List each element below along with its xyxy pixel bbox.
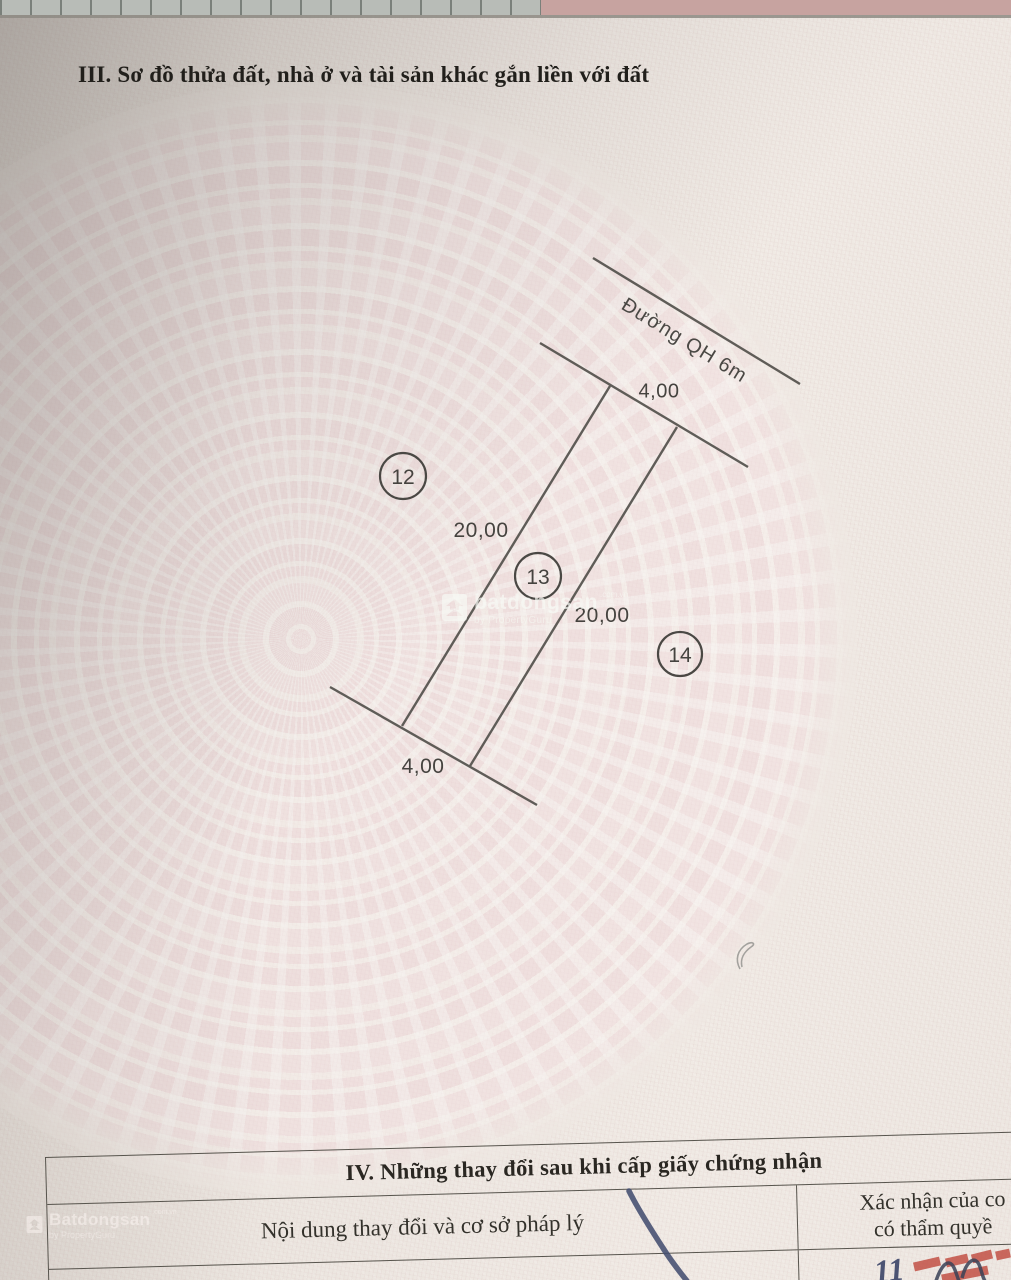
parcel-13-number: 13 xyxy=(526,566,549,589)
watermark-suffix: .com.vn xyxy=(600,590,628,599)
plot13-left-edge xyxy=(402,386,610,726)
watermark-center: batdongsan .com.vn by PropertyGuru xyxy=(441,592,628,626)
section4-table: IV. Những thay đổi sau khi cấp giấy chứn… xyxy=(45,1130,1011,1280)
scanned-certificate-page: III. Sơ đồ thửa đất, nhà ở và tài sản kh… xyxy=(0,0,1011,1280)
batdongsan-logo-icon xyxy=(441,592,468,623)
scan-scratch-mark xyxy=(737,943,753,969)
dimension-top: 4,00 xyxy=(639,381,680,404)
confirmation-line2: có thẩm quyề xyxy=(874,1212,993,1242)
dimension-bottom: 4,00 xyxy=(402,755,445,779)
column-header-confirmation: Xác nhận của co có thẩm quyề xyxy=(797,1178,1011,1249)
watermark-byline: by PropertyGuru xyxy=(474,615,628,626)
batdongsan-logo-icon xyxy=(26,1211,43,1238)
plot-diagram: 12 13 14 xyxy=(0,0,1011,1280)
dimension-left: 20,00 xyxy=(453,519,508,543)
handwritten-number: 11 xyxy=(872,1251,906,1280)
parcel-12-number: 12 xyxy=(391,466,414,489)
rear-boundary xyxy=(330,687,537,805)
parcel-14-number: 14 xyxy=(668,644,692,667)
empty-cell-confirmation xyxy=(799,1243,1011,1280)
watermark-brand: batdongsan xyxy=(474,592,598,614)
confirmation-line1: Xác nhận của co xyxy=(859,1185,1006,1216)
road-upper-edge xyxy=(593,258,800,384)
